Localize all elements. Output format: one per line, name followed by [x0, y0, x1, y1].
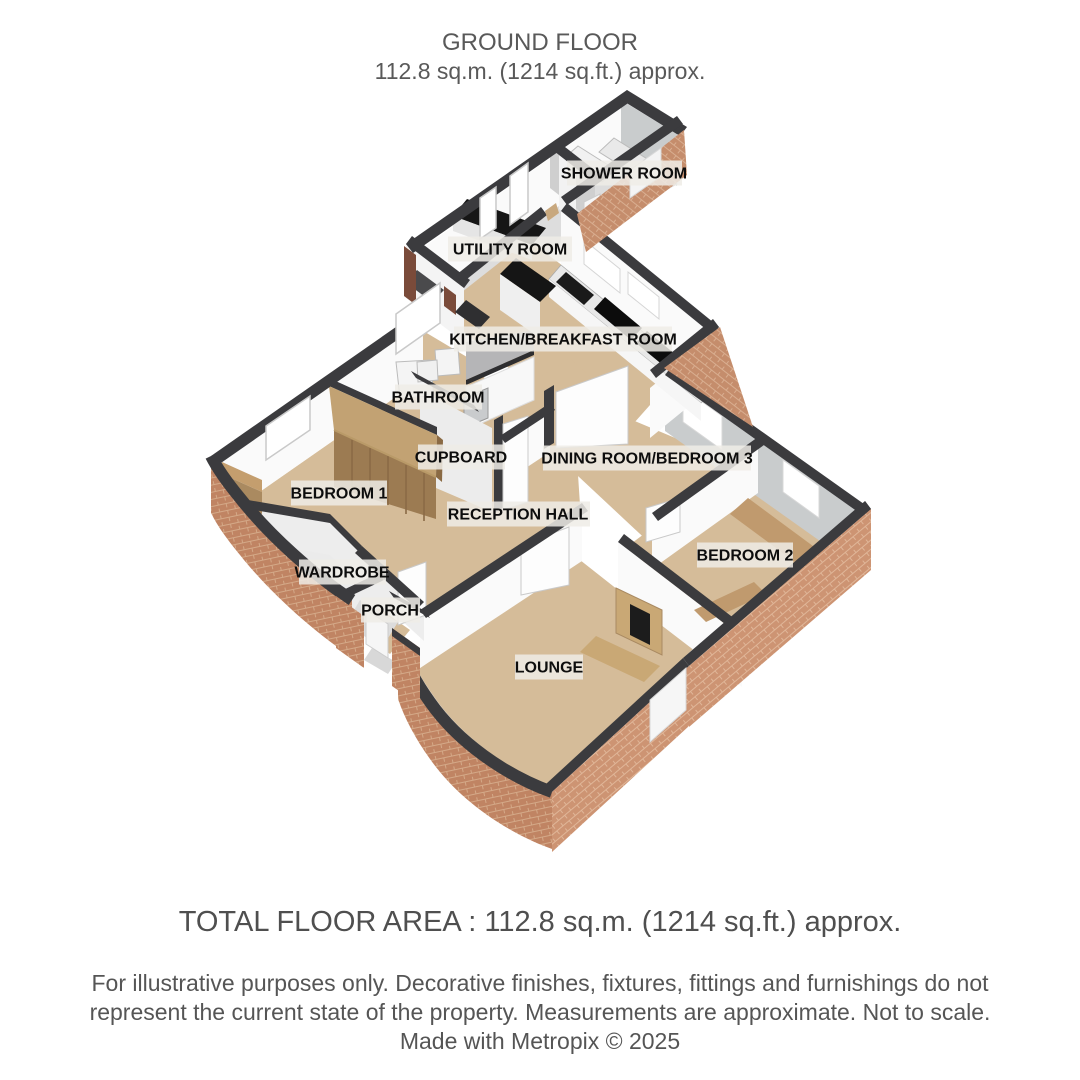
svg-text:DINING ROOM/BEDROOM 3: DINING ROOM/BEDROOM 3 — [541, 451, 753, 468]
svg-text:UTILITY ROOM: UTILITY ROOM — [453, 242, 567, 259]
svg-text:PORCH: PORCH — [361, 603, 419, 620]
svg-text:CUPBOARD: CUPBOARD — [415, 450, 507, 467]
svg-text:BATHROOM: BATHROOM — [391, 390, 484, 407]
svg-text:RECEPTION HALL: RECEPTION HALL — [448, 507, 589, 524]
svg-text:WARDROBE: WARDROBE — [294, 565, 389, 582]
svg-text:LOUNGE: LOUNGE — [515, 660, 584, 677]
svg-text:SHOWER ROOM: SHOWER ROOM — [561, 166, 687, 183]
svg-text:KITCHEN/BREAKFAST ROOM: KITCHEN/BREAKFAST ROOM — [449, 332, 677, 349]
svg-text:BEDROOM 2: BEDROOM 2 — [697, 548, 794, 565]
svg-text:BEDROOM 1: BEDROOM 1 — [291, 486, 388, 503]
